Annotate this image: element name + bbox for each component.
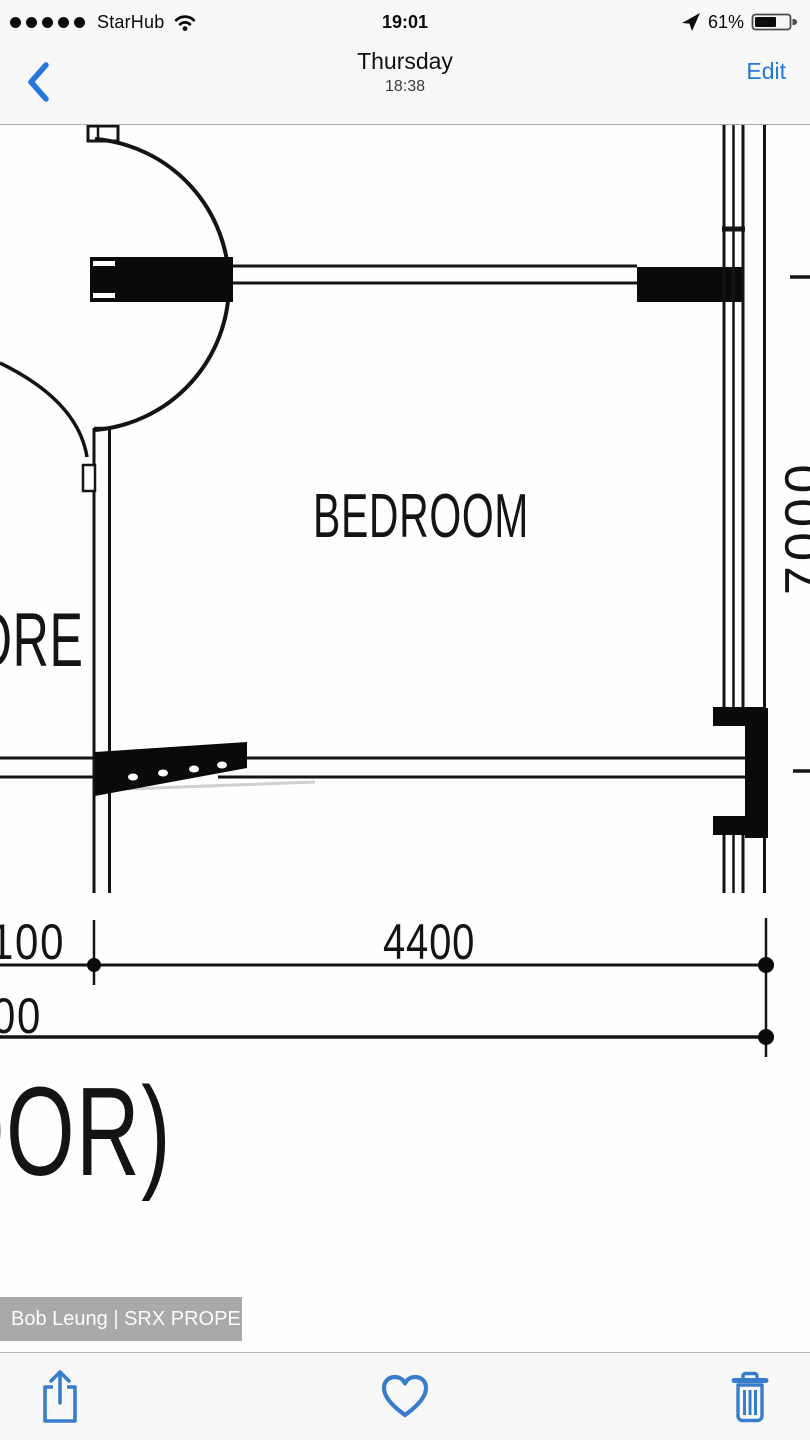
photo-canvas[interactable]: BEDROOM ORE 7000 100 4400 00 OOR) Bob Le…	[0, 125, 810, 1352]
share-button[interactable]	[20, 1353, 100, 1440]
nav-title-group: Thursday 18:38	[150, 46, 660, 98]
battery-icon	[751, 11, 798, 33]
dimension-100: 100	[0, 917, 65, 967]
iphone-photos-screen: StarHub 19:01 61%	[0, 0, 810, 1440]
dimension-4400: 4400	[383, 917, 475, 967]
page-subtitle: 18:38	[150, 76, 660, 98]
room-label-store-partial: ORE	[0, 603, 84, 679]
delete-button[interactable]	[710, 1353, 790, 1440]
status-bar: StarHub 19:01 61%	[0, 0, 810, 44]
edit-button[interactable]: Edit	[746, 58, 786, 85]
battery-percent-label: 61%	[708, 12, 744, 33]
dimension-7000-rotated: 7000	[778, 459, 810, 595]
share-icon	[38, 1368, 82, 1426]
room-label-bedroom: BEDROOM	[313, 486, 529, 548]
status-right: 61%	[681, 0, 798, 44]
dimension-00-partial: 00	[0, 991, 42, 1041]
page-title: Thursday	[150, 46, 660, 76]
favorite-button[interactable]	[365, 1353, 445, 1440]
location-arrow-icon	[681, 12, 701, 32]
heart-icon	[381, 1375, 429, 1419]
watermark-badge: Bob Leung | SRX PROPERTY	[0, 1297, 242, 1341]
chevron-left-icon	[26, 61, 50, 103]
back-button[interactable]	[18, 54, 58, 110]
plan-caption-partial: OOR)	[0, 1069, 172, 1195]
trash-icon	[729, 1370, 771, 1424]
bottom-toolbar	[0, 1352, 810, 1440]
nav-bar: Thursday 18:38 Edit	[0, 44, 810, 125]
header: StarHub 19:01 61%	[0, 0, 810, 125]
